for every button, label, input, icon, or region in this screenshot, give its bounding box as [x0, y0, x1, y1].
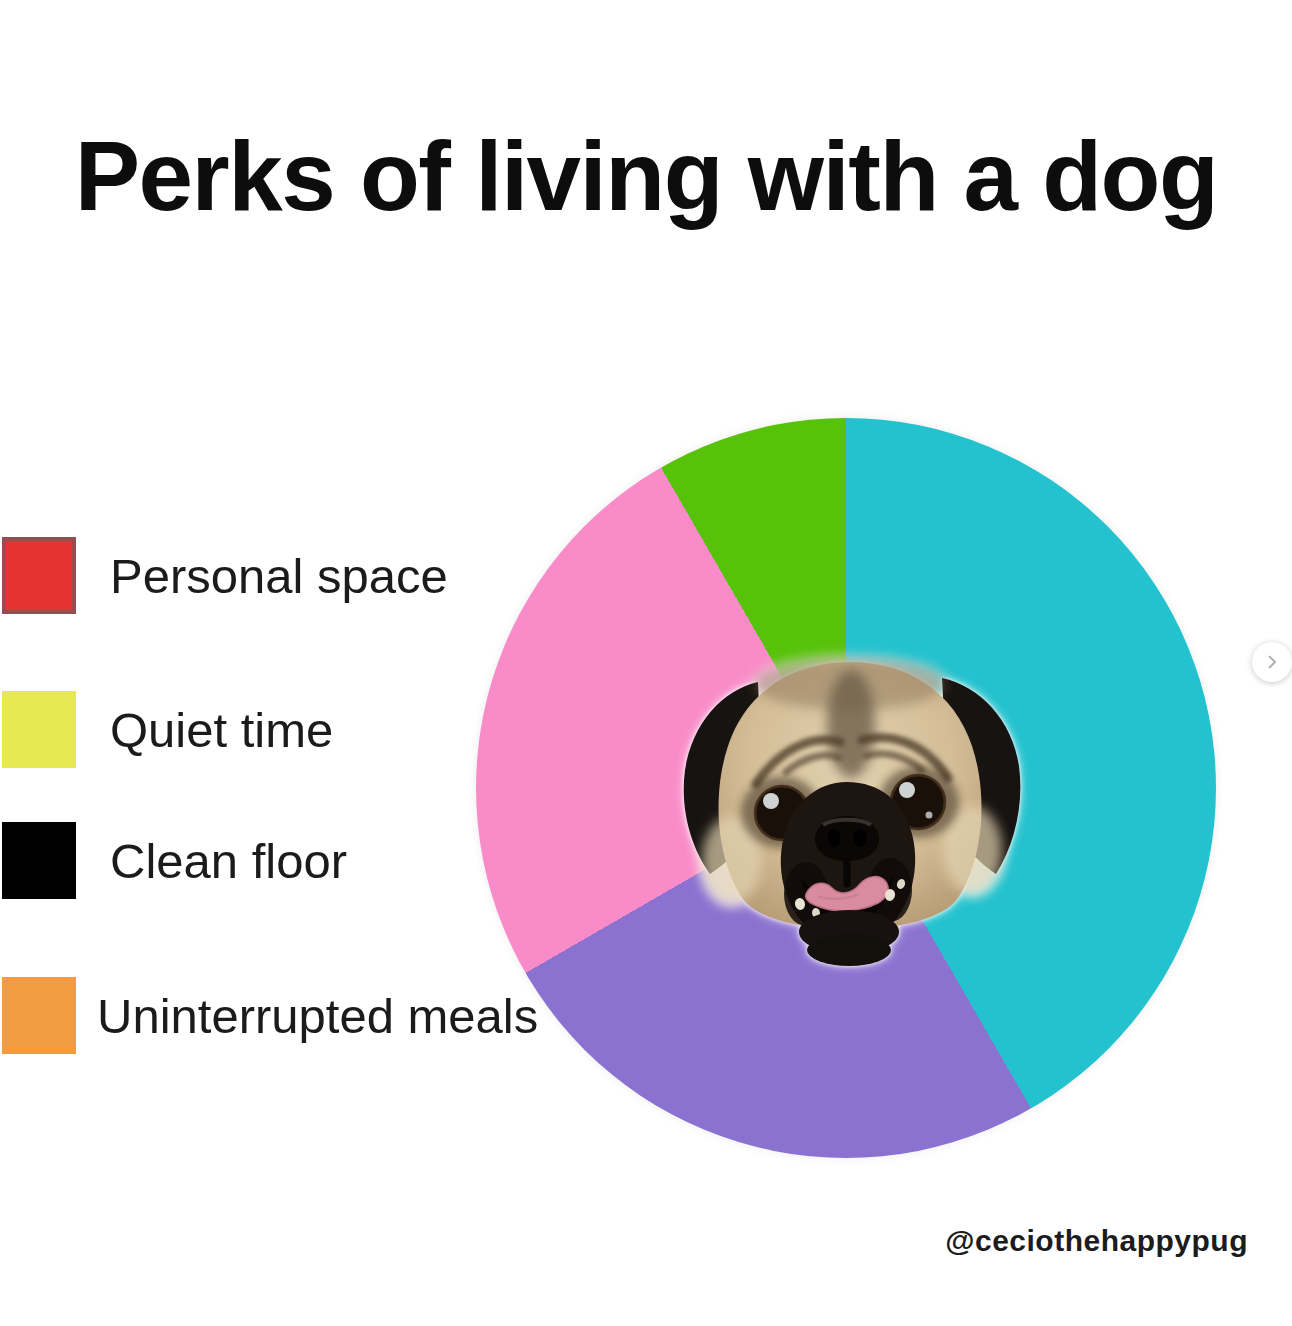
legend-item-uninterrupted-meals: Uninterrupted meals	[0, 977, 538, 1054]
legend-swatch-uninterrupted-meals	[2, 977, 76, 1054]
legend-label-quiet-time: Quiet time	[110, 702, 333, 758]
legend-label-uninterrupted-meals: Uninterrupted meals	[97, 988, 538, 1044]
chevron-right-icon	[1263, 653, 1281, 671]
legend-swatch-personal-space	[2, 537, 76, 614]
legend-label-clean-floor: Clean floor	[110, 833, 347, 889]
carousel-next-button[interactable]	[1252, 642, 1292, 682]
legend-swatch-quiet-time	[2, 691, 76, 768]
pug-face-image	[640, 632, 1060, 972]
legend-item-personal-space: Personal space	[0, 537, 448, 614]
legend-item-clean-floor: Clean floor	[0, 822, 347, 899]
meme-image: Perks of living with a dog Personal spac…	[0, 0, 1292, 1326]
legend-item-quiet-time: Quiet time	[0, 691, 333, 768]
watermark-handle: @ceciothehappypug	[945, 1224, 1248, 1258]
legend-swatch-clean-floor	[2, 822, 76, 899]
legend-label-personal-space: Personal space	[110, 548, 448, 604]
